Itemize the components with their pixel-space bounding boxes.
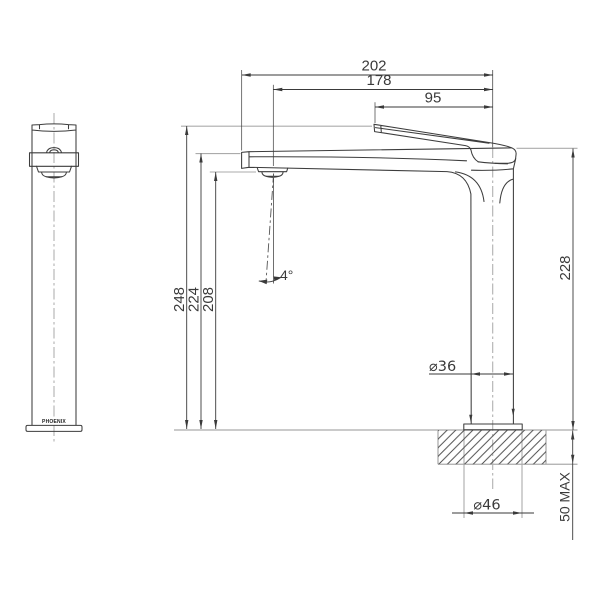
hatch-fill [438,430,546,464]
arrow [504,372,513,375]
dim-208-label: 208 [200,287,217,312]
arrow [185,420,188,429]
arrow [199,154,202,163]
arrow [571,431,574,440]
spout-outline [242,148,516,424]
arrow [513,511,522,514]
angle-label: 4° [280,267,293,283]
dim-dia46-label: ⌀46 [473,498,500,514]
base-left-arrow [469,415,472,423]
dim-50max-label: 50 MAX [557,471,573,521]
arrow [571,421,574,430]
side-aerator [257,168,288,177]
arrow [471,372,480,375]
base-right-arrow [512,409,515,417]
arrow [242,73,251,76]
dim-95-label: 95 [425,90,442,107]
arrow [375,105,384,108]
arrow [214,420,217,429]
counter-cross-section [438,430,546,464]
arrow [484,73,493,76]
stream-centerline [266,174,274,284]
arrow [464,511,473,514]
arrow [199,420,202,429]
lever-outline [374,124,516,163]
dim-178-label: 178 [366,72,391,89]
dim-dia36-label: ⌀36 [429,359,456,375]
arrow [484,105,493,108]
arrow [214,172,217,181]
faucet-dimension-drawing: PHOENIX 4° 202 178 95 [0,0,600,600]
arrow [571,455,574,464]
angle-arc-arrow-left [259,280,268,285]
arrow [273,88,282,91]
brand-label: PHOENIX [42,419,66,425]
dim-228-label: 228 [557,255,574,280]
technical-drawing-canvas: PHOENIX 4° 202 178 95 [0,0,600,600]
side-view: 4° [242,124,523,430]
dimensions: 202 178 95 248 224 208 228 50 MAX ⌀36 [171,58,575,541]
arrow [571,149,574,158]
arrow [185,126,188,135]
arrow [484,88,493,91]
